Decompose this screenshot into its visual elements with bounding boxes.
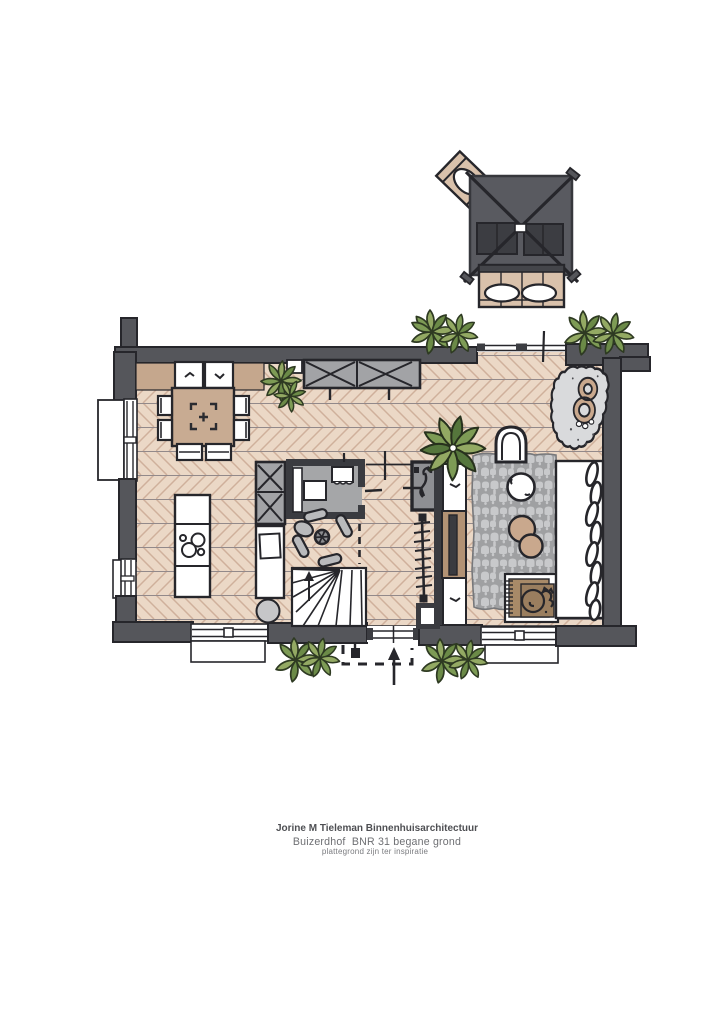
svg-text:Jorine M Tieleman Binnenhuisar: Jorine M Tieleman Binnenhuisarchitectuur xyxy=(276,823,478,834)
svg-text:plattegrond zijn ter inspirati: plattegrond zijn ter inspiratie xyxy=(322,847,429,856)
